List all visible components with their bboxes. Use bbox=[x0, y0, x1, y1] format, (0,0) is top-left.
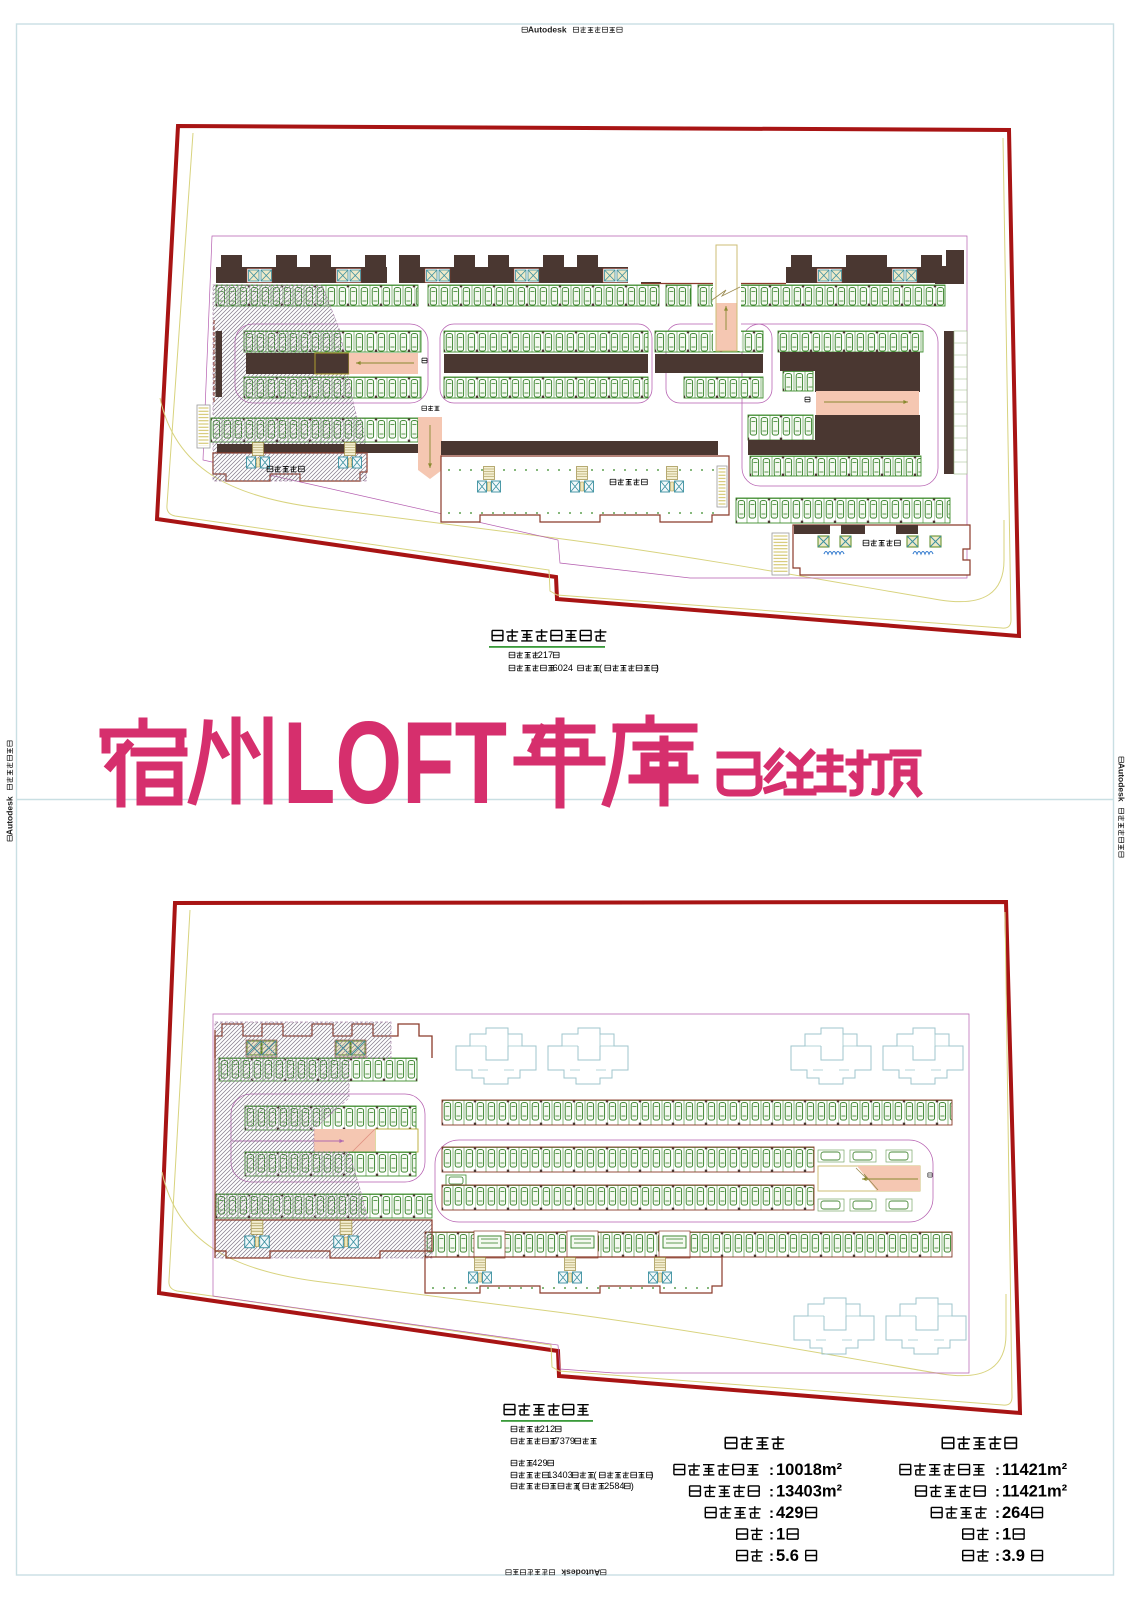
svg-text:13403: 13403 bbox=[547, 1470, 573, 1480]
svg-text::: : bbox=[769, 1548, 774, 1565]
svg-text:217: 217 bbox=[538, 650, 553, 660]
svg-text:6024: 6024 bbox=[553, 663, 573, 673]
svg-text:3.9: 3.9 bbox=[1002, 1547, 1025, 1565]
svg-text:Autodesk: Autodesk bbox=[1117, 763, 1127, 802]
svg-text:): ) bbox=[631, 1481, 634, 1491]
svg-text::: : bbox=[769, 1484, 774, 1501]
svg-text:1: 1 bbox=[1002, 1526, 1011, 1544]
svg-text:Autodesk: Autodesk bbox=[4, 796, 14, 835]
svg-text:212: 212 bbox=[540, 1424, 555, 1434]
svg-text:(: ( bbox=[577, 1481, 580, 1491]
svg-text:Autodesk: Autodesk bbox=[561, 1568, 600, 1578]
svg-text:7379: 7379 bbox=[555, 1436, 575, 1446]
svg-text:13403m²: 13403m² bbox=[776, 1483, 843, 1501]
svg-text:5.6: 5.6 bbox=[776, 1547, 799, 1565]
svg-text:429: 429 bbox=[776, 1504, 804, 1522]
svg-text:2584: 2584 bbox=[604, 1481, 624, 1491]
svg-text:(: ( bbox=[599, 663, 602, 673]
svg-text:(: ( bbox=[594, 1470, 597, 1480]
svg-text::: : bbox=[995, 1462, 1000, 1479]
svg-text::: : bbox=[995, 1505, 1000, 1522]
svg-text::: : bbox=[769, 1527, 774, 1544]
svg-text::: : bbox=[995, 1548, 1000, 1565]
svg-text::: : bbox=[995, 1484, 1000, 1501]
svg-text:10018m²: 10018m² bbox=[776, 1461, 843, 1479]
svg-text:11421m²: 11421m² bbox=[1002, 1461, 1068, 1479]
svg-text::: : bbox=[995, 1527, 1000, 1544]
svg-text:429: 429 bbox=[532, 1458, 547, 1468]
svg-text:LOFT: LOFT bbox=[283, 697, 507, 828]
svg-text:Autodesk: Autodesk bbox=[528, 24, 567, 34]
svg-text:264: 264 bbox=[1002, 1504, 1030, 1522]
svg-text::: : bbox=[769, 1462, 774, 1479]
svg-text:): ) bbox=[656, 663, 659, 673]
svg-text:1: 1 bbox=[776, 1526, 785, 1544]
svg-text:11421m²: 11421m² bbox=[1002, 1483, 1068, 1501]
svg-text::: : bbox=[769, 1505, 774, 1522]
svg-text:): ) bbox=[650, 1470, 653, 1480]
